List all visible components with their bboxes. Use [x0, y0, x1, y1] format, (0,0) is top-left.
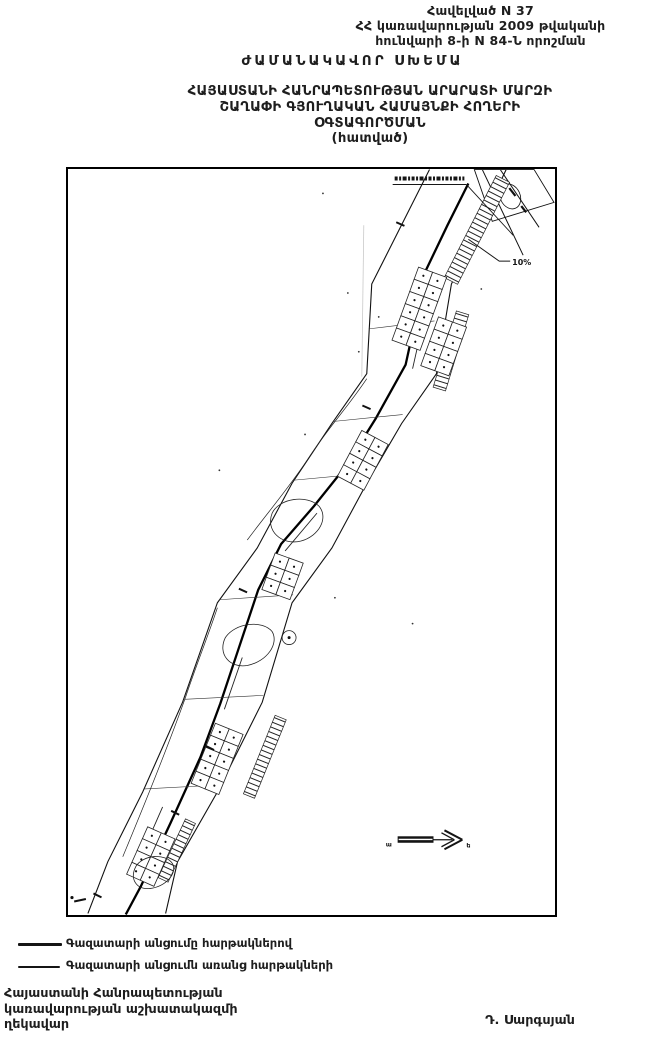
page-title: ՀԱՅԱՍՏԱՆԻ ՀԱՆՐԱՊԵՏՈՒԹՅԱՆ ԱՐԱՐԱՏԻ ՄԱՐԶԻ Շ… — [85, 84, 655, 147]
appendix-line: Հավելված N 37 — [300, 3, 661, 18]
parcel-grid — [127, 267, 467, 886]
legend-thin-line-sample — [18, 966, 60, 968]
legend-label: Գազատարի անցումն առանց հարթակների — [66, 958, 333, 972]
arrow-right-letter: ե — [466, 842, 470, 850]
legend-item-thick: Գազատարի անցումը հարթակներով — [0, 936, 661, 958]
schema-heading: ԺԱՄԱՆԱԿԱՎՈՐ ՍԽԵՄԱ — [130, 53, 575, 69]
map-frame: 10% ա — [66, 167, 557, 917]
pipeline-thin-segments — [134, 329, 422, 873]
parcel-number-marks — [70, 221, 404, 902]
legend-thick-line-sample — [18, 943, 62, 946]
appendix-line: ՀՀ կառավարության 2009 թվականի — [300, 18, 661, 33]
signatory-name: Դ. Սարգսյան — [420, 1013, 640, 1028]
signatory-title-line: ղեկավար — [4, 1017, 334, 1033]
signatory-title: Հայաստանի Հանրապետության կառավարության ա… — [4, 986, 334, 1033]
arrow-left-letter: ա — [386, 841, 392, 849]
percent-label: 10% — [512, 258, 531, 267]
appendix-line: հունվարի 8-ի N 84-Ն որոշման — [300, 33, 661, 48]
title-line: ՇԱՂԱՓԻ ԳՅՈՒՂԱԿԱՆ ՀԱՄԱՅՆՔԻ ՀՈՂԵՐԻ — [85, 100, 655, 116]
signatory-title-line: կառավարության աշխատակազմի — [4, 1002, 334, 1018]
pipeline-map: 10% ա — [68, 169, 555, 915]
legend-item-thin: Գազատարի անցումն առանց հարթակների — [0, 958, 661, 980]
title-line: ՀԱՅԱՍՏԱՆԻ ՀԱՆՐԱՊԵՏՈՒԹՅԱՆ ԱՐԱՐԱՏԻ ՄԱՐԶԻ — [85, 84, 655, 100]
legend-label: Գազատարի անցումը հարթակներով — [66, 936, 292, 950]
appendix-reference: Հավելված N 37 ՀՀ կառավարության 2009 թվակ… — [300, 3, 661, 48]
signatory-title-line: Հայաստանի Հանրապետության — [4, 986, 334, 1002]
title-line: (հատված) — [85, 131, 655, 147]
direction-arrow: ա ե — [386, 830, 471, 849]
document-page: Հավելված N 37 ՀՀ կառավարության 2009 թվակ… — [0, 0, 661, 1038]
title-line: ՕԳՏԱԳՈՐԾՄԱՆ — [85, 116, 655, 132]
scan-artifact-line — [362, 225, 364, 376]
